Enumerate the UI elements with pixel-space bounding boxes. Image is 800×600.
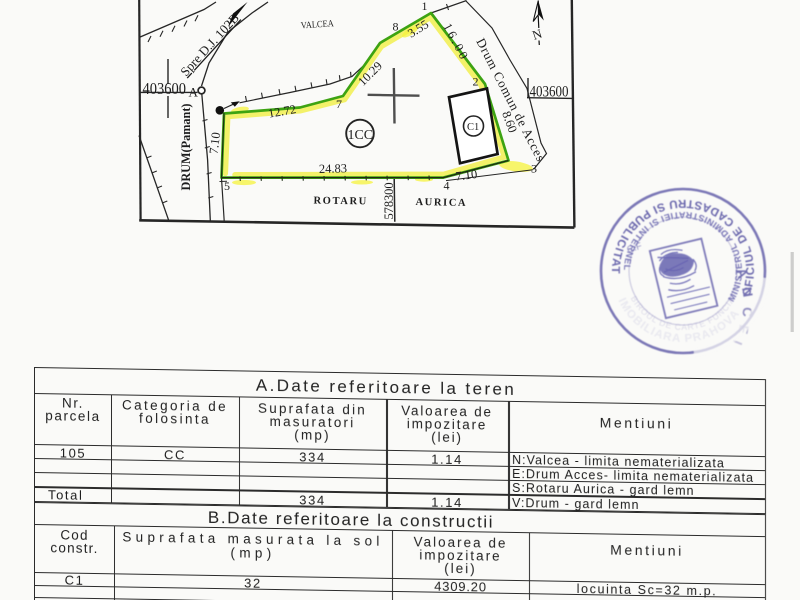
svg-text:N: N (530, 25, 544, 42)
svg-text:10.29: 10.29 (355, 59, 385, 89)
svg-text:5: 5 (224, 179, 230, 193)
svg-text:403600: 403600 (530, 84, 569, 101)
svg-text:VALCEA: VALCEA (301, 19, 335, 31)
svg-text:4: 4 (444, 179, 450, 193)
svg-text:1CC: 1CC (348, 127, 374, 142)
svg-text:7.10: 7.10 (207, 131, 224, 154)
svg-text:N: N (739, 286, 755, 298)
svg-text:3: 3 (531, 162, 537, 176)
svg-text:16.00: 16.00 (440, 21, 472, 64)
svg-text:1: 1 (422, 0, 428, 13)
svg-text:ROTARU: ROTARU (313, 196, 368, 208)
svg-text:7: 7 (336, 97, 342, 111)
svg-text:8: 8 (393, 20, 399, 34)
svg-text:AURICA: AURICA (415, 197, 467, 209)
svg-text:A: A (189, 85, 199, 100)
svg-text:C1: C1 (467, 122, 479, 133)
svg-text:2: 2 (473, 75, 479, 89)
svg-text:12.72: 12.72 (267, 102, 297, 121)
svg-text:C.F: C.F (626, 241, 644, 256)
svg-text:DRUM(Pamant): DRUM(Pamant) (178, 104, 193, 191)
svg-text:578300: 578300 (382, 183, 396, 220)
svg-text:403600: 403600 (143, 79, 187, 98)
svg-text:24.83: 24.83 (319, 161, 347, 176)
svg-text:7.10: 7.10 (455, 167, 478, 184)
svg-text:MINISTERUL ADMINISTRATIEI SI I: MINISTERUL ADMINISTRATIEI SI INTERNELOR (0, 0, 744, 303)
